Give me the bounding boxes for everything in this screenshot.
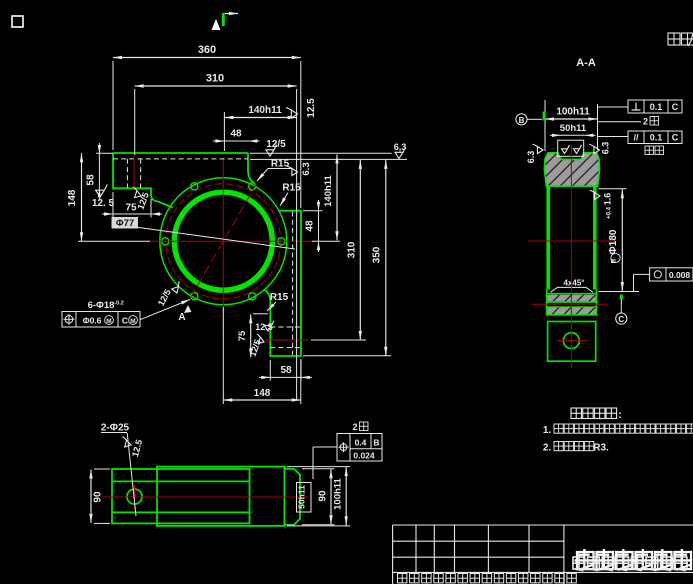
svg-text:1.6: 1.6 — [603, 193, 613, 206]
svg-text:-0.2: -0.2 — [114, 301, 123, 307]
svg-text:58: 58 — [86, 174, 97, 186]
svg-text:75: 75 — [237, 330, 248, 341]
svg-text:6.3: 6.3 — [301, 162, 312, 175]
svg-text:C: C — [122, 316, 128, 326]
svg-text:C: C — [672, 133, 679, 143]
svg-text:Φ77: Φ77 — [116, 218, 134, 229]
svg-text:0.008: 0.008 — [669, 270, 691, 280]
svg-text:Φ180: Φ180 — [608, 229, 619, 254]
svg-text:0.1: 0.1 — [650, 133, 663, 143]
svg-text:2-Φ25: 2-Φ25 — [101, 423, 130, 434]
svg-text:B: B — [519, 116, 525, 125]
svg-text:6,3: 6,3 — [394, 142, 407, 152]
svg-text:100h11: 100h11 — [556, 107, 590, 118]
svg-text:4x45°: 4x45° — [564, 278, 585, 287]
svg-text:148: 148 — [67, 189, 78, 206]
svg-text:140h11: 140h11 — [323, 174, 334, 206]
svg-text:6.3: 6.3 — [526, 151, 536, 164]
svg-text:C: C — [672, 102, 679, 112]
svg-text:2: 2 — [643, 117, 648, 127]
svg-text:58: 58 — [280, 365, 292, 376]
svg-text:0.4: 0.4 — [355, 438, 367, 448]
svg-text:48: 48 — [305, 220, 316, 232]
svg-text:90: 90 — [93, 491, 104, 503]
svg-text:48: 48 — [230, 129, 242, 140]
svg-text:360: 360 — [198, 44, 216, 56]
svg-text:R15: R15 — [271, 159, 290, 170]
svg-text:50h11: 50h11 — [297, 485, 307, 509]
svg-text:100h11: 100h11 — [333, 477, 344, 509]
svg-text:148: 148 — [254, 388, 271, 399]
svg-text:B: B — [611, 258, 618, 263]
svg-text:R3.: R3. — [593, 443, 609, 454]
svg-text::: : — [618, 409, 622, 421]
svg-text:6-Φ18: 6-Φ18 — [88, 300, 115, 311]
svg-text:A-A: A-A — [576, 57, 596, 69]
svg-text:310: 310 — [347, 241, 358, 258]
svg-text:M: M — [106, 318, 111, 325]
svg-text:C: C — [618, 315, 624, 324]
svg-text:350: 350 — [372, 246, 383, 263]
svg-text:140h11: 140h11 — [248, 105, 282, 116]
svg-text:R15: R15 — [282, 183, 301, 194]
svg-text:0.1: 0.1 — [650, 102, 663, 112]
svg-text://: // — [633, 133, 639, 143]
svg-text:M: M — [130, 318, 135, 325]
svg-text:50h11: 50h11 — [560, 123, 587, 134]
svg-text:R15: R15 — [270, 292, 289, 303]
svg-text:6.3: 6.3 — [601, 142, 611, 155]
svg-text:Φ0.6: Φ0.6 — [83, 316, 102, 326]
svg-text:0.024: 0.024 — [353, 451, 375, 461]
svg-text:2.: 2. — [543, 443, 552, 454]
svg-text:1.: 1. — [543, 425, 552, 436]
svg-text:90: 90 — [318, 490, 329, 502]
svg-text:2: 2 — [352, 422, 357, 432]
svg-text:A: A — [178, 312, 185, 323]
svg-text:12. 5: 12. 5 — [92, 198, 115, 209]
svg-text:12.5: 12.5 — [255, 322, 273, 332]
svg-text:+0.4: +0.4 — [607, 206, 613, 219]
svg-text:310: 310 — [206, 73, 224, 85]
svg-text:B: B — [373, 438, 379, 448]
svg-text:12.5: 12.5 — [306, 98, 317, 118]
